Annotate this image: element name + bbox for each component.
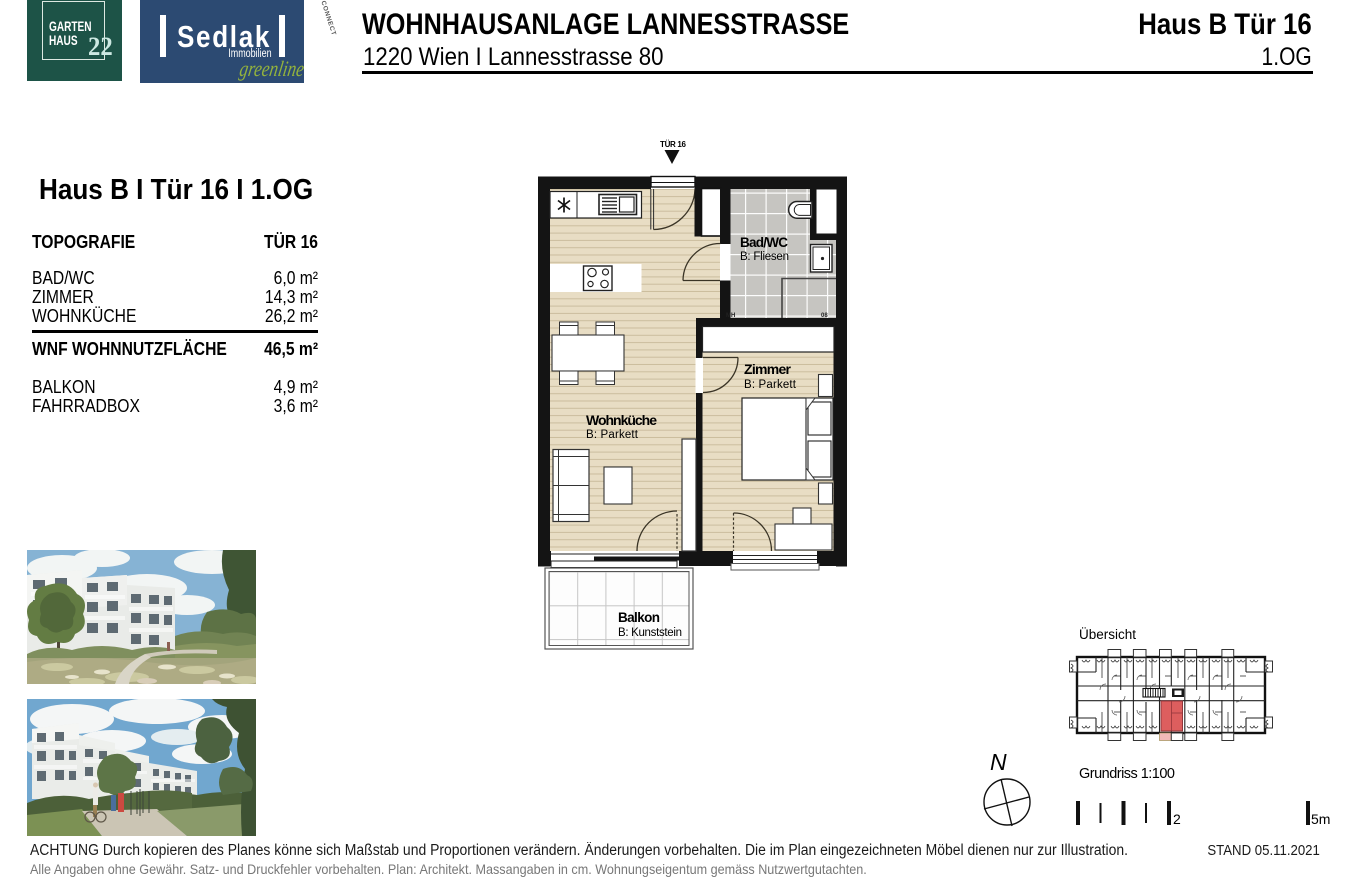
svg-text:Grundriss 1:100: Grundriss 1:100 bbox=[1079, 766, 1175, 782]
svg-text:B: Parkett: B: Parkett bbox=[586, 429, 639, 441]
svg-text:Zimmer: Zimmer bbox=[744, 361, 792, 377]
svg-text:B: Parkett: B: Parkett bbox=[744, 379, 797, 391]
svg-text:N: N bbox=[990, 749, 1007, 775]
svg-text:MH: MH bbox=[726, 313, 735, 319]
svg-text:Bad/WC: Bad/WC bbox=[740, 235, 788, 250]
svg-text:Wohnküche: Wohnküche bbox=[586, 412, 657, 428]
svg-text:5m: 5m bbox=[1311, 811, 1330, 827]
svg-text:TÜR 16: TÜR 16 bbox=[660, 140, 687, 149]
svg-text:2: 2 bbox=[1173, 811, 1181, 827]
svg-text:Übersicht: Übersicht bbox=[1079, 627, 1136, 642]
svg-text:Balkon: Balkon bbox=[618, 610, 660, 625]
svg-text:B: Fliesen: B: Fliesen bbox=[740, 251, 789, 263]
svg-text:08: 08 bbox=[821, 313, 828, 319]
svg-text:B: Kunststein: B: Kunststein bbox=[618, 627, 682, 639]
